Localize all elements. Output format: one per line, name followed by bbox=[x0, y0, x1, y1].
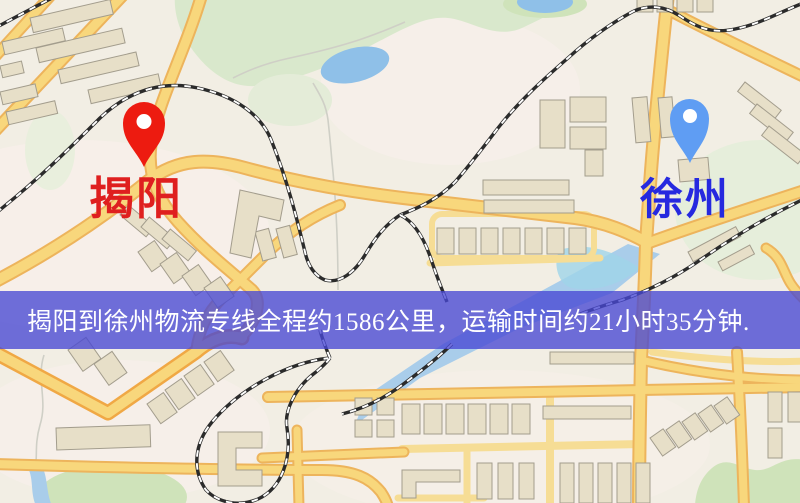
route-info-text: 揭阳到徐州物流专线全程约1586公里，运输时间约21小时35分钟. bbox=[27, 302, 750, 338]
route-info-banner: 揭阳到徐州物流专线全程约1586公里，运输时间约21小时35分钟. bbox=[0, 291, 800, 349]
map-canvas bbox=[0, 0, 800, 503]
map-screenshot: 揭阳 徐州 揭阳到徐州物流专线全程约1586公里，运输时间约21小时35分钟. bbox=[0, 0, 800, 503]
destination-label: 徐州 bbox=[640, 179, 730, 222]
origin-label: 揭阳 bbox=[89, 177, 183, 222]
